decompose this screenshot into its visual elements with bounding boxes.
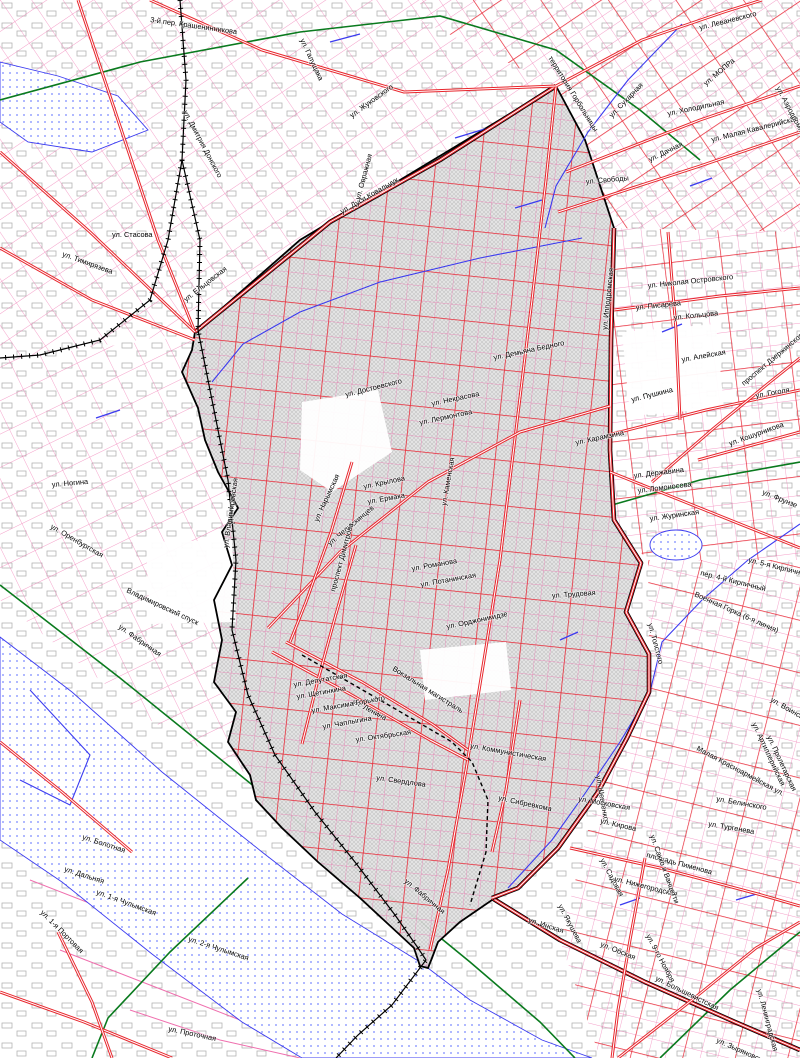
street-label: ул. Стасова: [112, 230, 153, 239]
pond: [650, 530, 702, 560]
map-canvas[interactable]: 3-й пер. Крашенинниковаул. Дмитрия Донск…: [0, 0, 800, 1058]
city-map[interactable]: 3-й пер. Крашенинниковаул. Дмитрия Донск…: [0, 0, 800, 1058]
